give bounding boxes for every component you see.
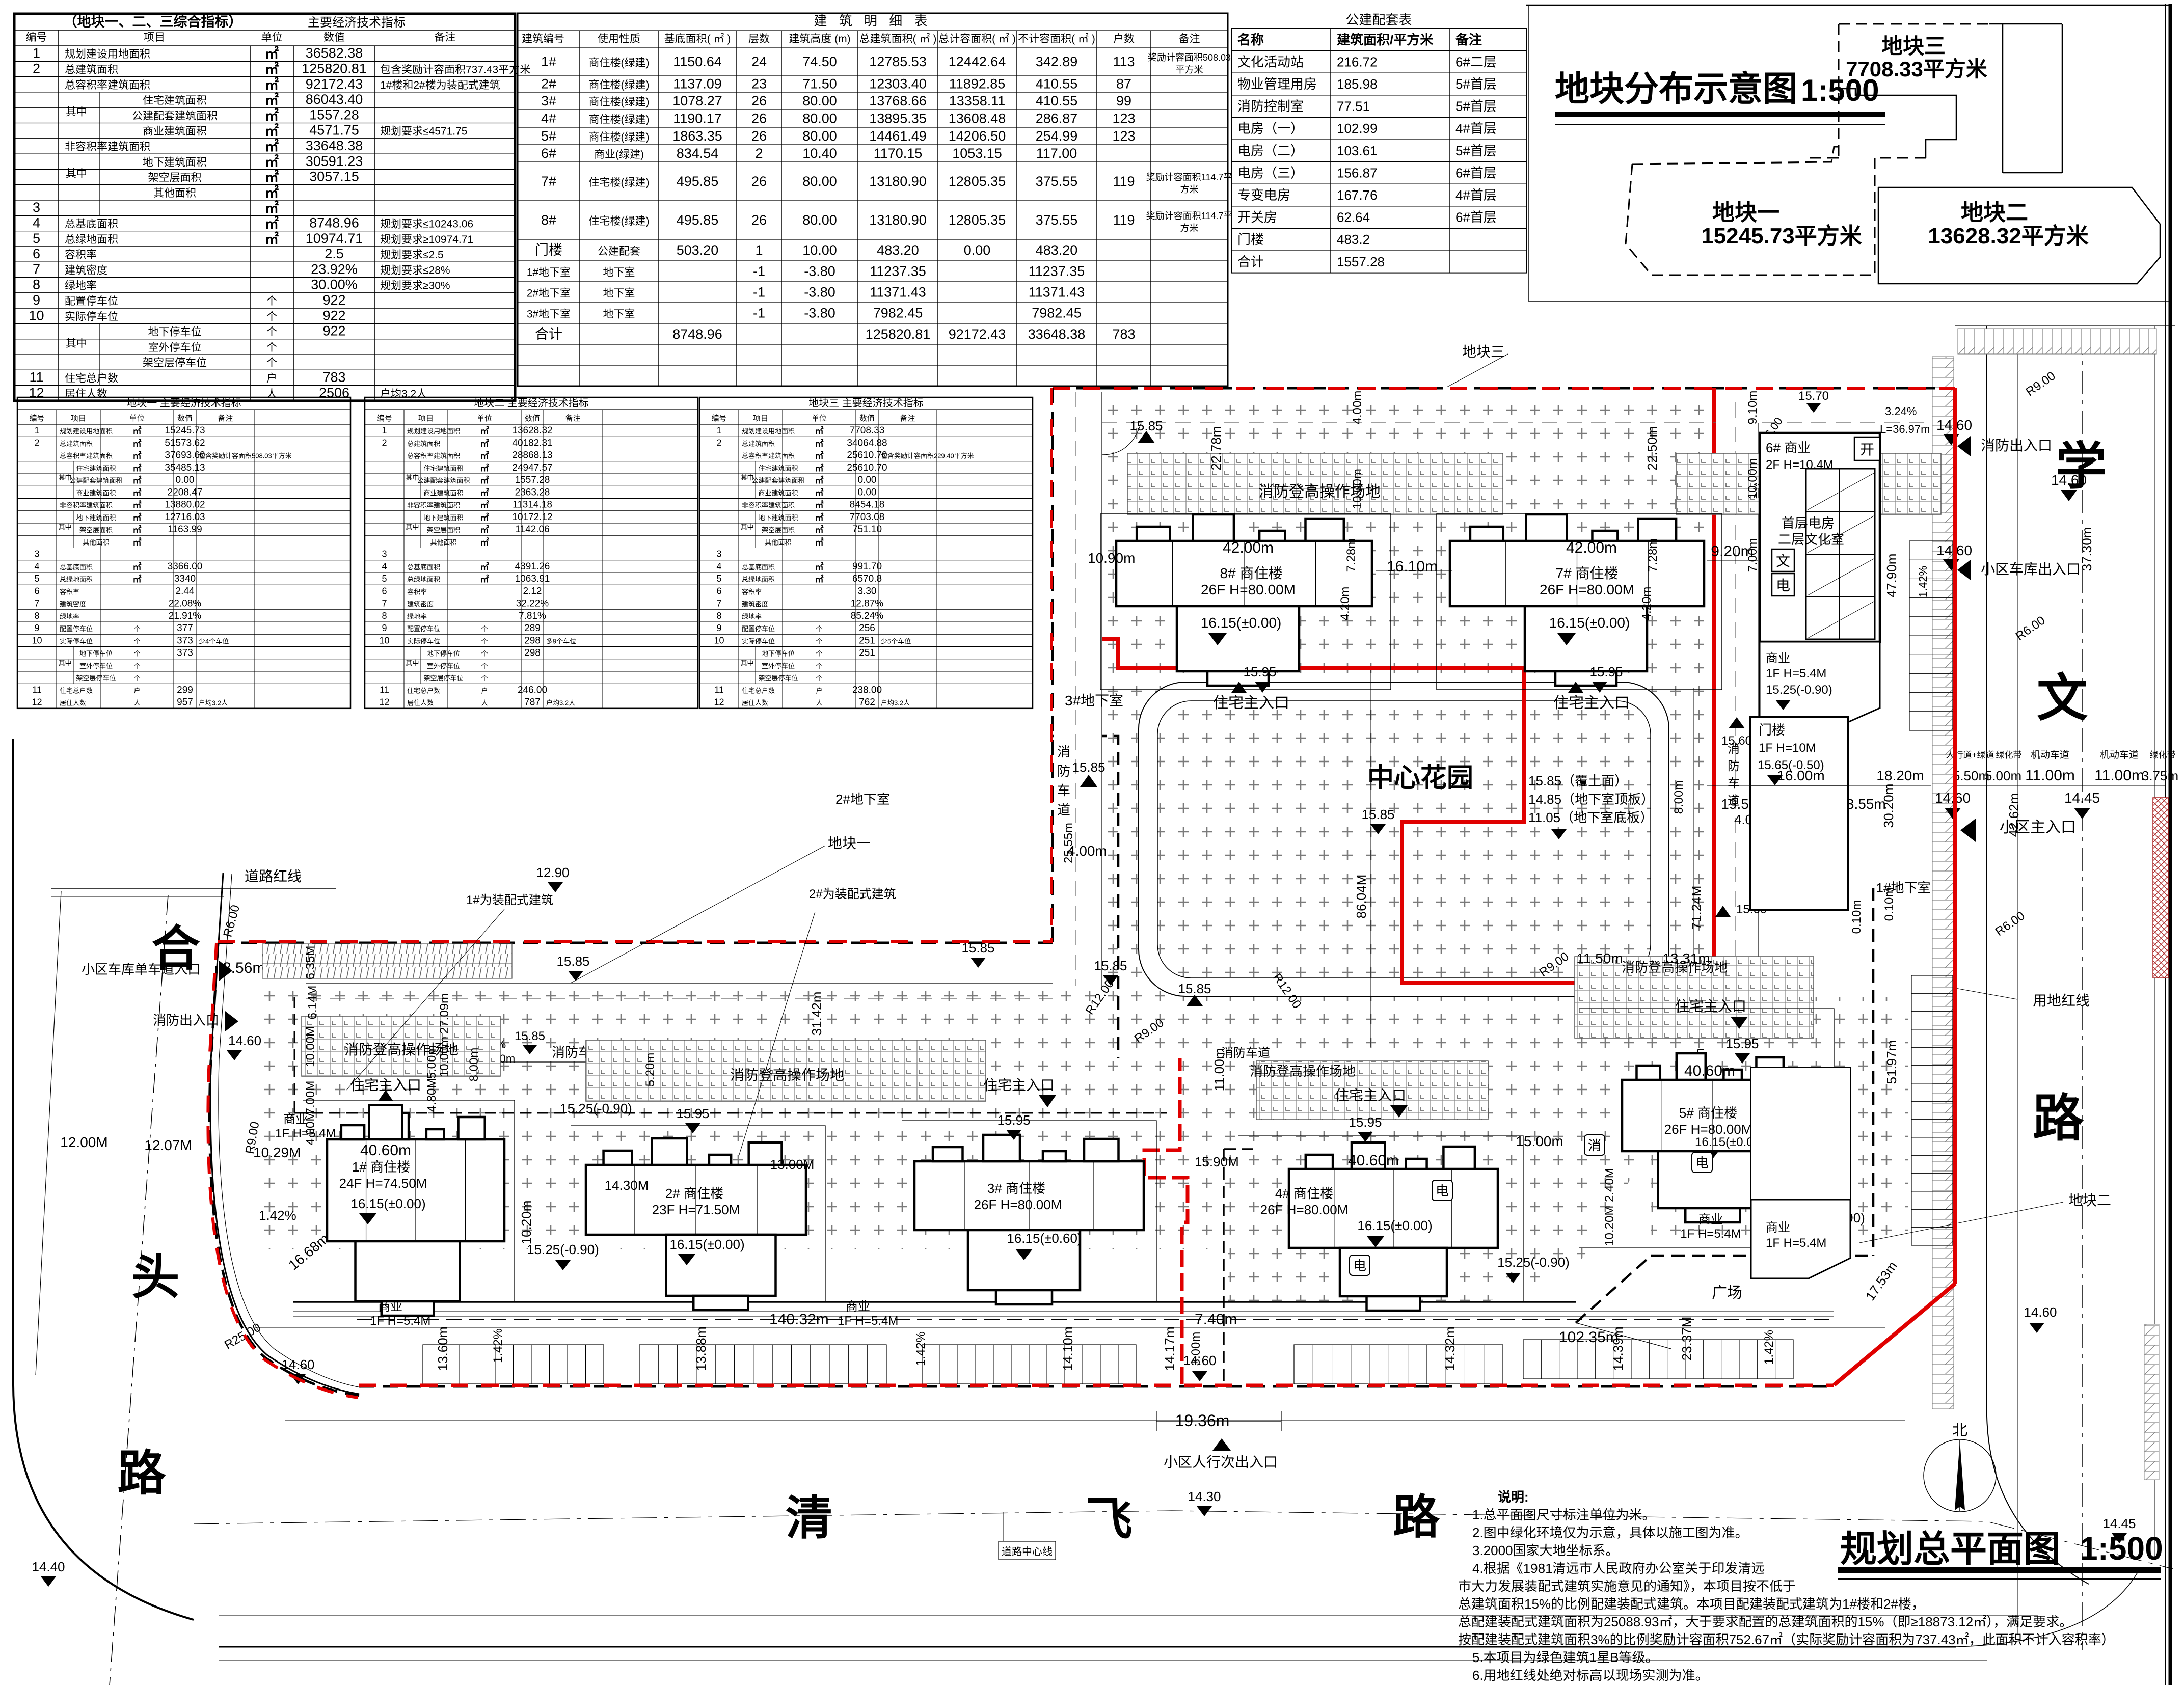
svg-text:8: 8: [382, 611, 387, 621]
svg-text:9: 9: [33, 292, 40, 308]
svg-text:74.50: 74.50: [802, 54, 837, 69]
svg-text:40.60m: 40.60m: [360, 1142, 411, 1159]
svg-text:15.85: 15.85: [1072, 759, 1105, 775]
svg-text:2F H=10.4M: 2F H=10.4M: [1766, 458, 1834, 472]
svg-text:7.40m: 7.40m: [1195, 1311, 1237, 1328]
svg-text:个: 个: [133, 674, 140, 682]
svg-text:住宅建筑面积: 住宅建筑面积: [423, 465, 463, 472]
svg-text:总建筑面积15%的比例配建装配式建筑。本项目配建装配式建筑为: 总建筑面积15%的比例配建装配式建筑。本项目配建装配式建筑为1#楼和2#楼，: [1458, 1596, 1925, 1612]
svg-text:住宅总户数: 住宅总户数: [407, 687, 440, 694]
svg-text:住宅主入口: 住宅主入口: [1335, 1087, 1406, 1103]
svg-text:102.99: 102.99: [1337, 121, 1378, 136]
svg-text:1F H=5.4M: 1F H=5.4M: [838, 1314, 898, 1328]
svg-text:个: 个: [481, 637, 488, 645]
svg-text:㎡: ㎡: [265, 215, 279, 231]
svg-text:22.78m: 22.78m: [1208, 426, 1224, 471]
svg-text:0.00: 0.00: [176, 475, 195, 485]
svg-text:商业: 商业: [1698, 1213, 1723, 1227]
svg-text:25.55m: 25.55m: [1062, 823, 1075, 863]
svg-text:14.60: 14.60: [2024, 1304, 2057, 1320]
svg-text:㎡: ㎡: [815, 500, 824, 510]
svg-text:4.20m: 4.20m: [1338, 587, 1352, 621]
svg-text:架空层面积: 架空层面积: [79, 526, 113, 534]
svg-text:道路红线: 道路红线: [245, 868, 302, 884]
svg-text:8.56m: 8.56m: [223, 960, 265, 976]
svg-text:绿地率: 绿地率: [407, 613, 427, 620]
svg-text:7.81%: 7.81%: [519, 611, 546, 621]
svg-text:㎡: ㎡: [265, 154, 279, 170]
svg-text:其中: 其中: [66, 168, 87, 180]
svg-text:40182.31: 40182.31: [512, 438, 552, 448]
svg-text:1: 1: [33, 45, 40, 61]
svg-text:10: 10: [379, 635, 389, 645]
svg-text:27.09m: 27.09m: [438, 993, 451, 1034]
svg-text:3: 3: [716, 549, 721, 559]
svg-text:6: 6: [34, 586, 39, 596]
svg-text:13768.66: 13768.66: [869, 93, 927, 108]
svg-text:2.图中绿化环境仅为示意，具体以施工图为准。: 2.图中绿化环境仅为示意，具体以施工图为准。: [1472, 1525, 1748, 1540]
svg-text:地下停车位: 地下停车位: [762, 650, 795, 658]
svg-text:容积率: 容积率: [742, 588, 762, 595]
svg-text:户: 户: [481, 687, 488, 694]
svg-text:1557.28: 1557.28: [309, 107, 359, 122]
svg-text:140.32m: 140.32m: [769, 1311, 829, 1328]
svg-text:㎡: ㎡: [133, 562, 142, 572]
svg-text:4: 4: [33, 215, 40, 230]
svg-text:15.25(-0.90): 15.25(-0.90): [560, 1101, 632, 1116]
svg-text:非容积率建筑面积: 非容积率建筑面积: [65, 141, 150, 153]
svg-text:个: 个: [481, 625, 488, 633]
svg-text:24F H=74.50M: 24F H=74.50M: [339, 1176, 427, 1191]
svg-text:规划要求≤2.5: 规划要求≤2.5: [380, 249, 444, 261]
svg-text:㎡: ㎡: [815, 525, 824, 535]
svg-text:3# 商住楼: 3# 商住楼: [987, 1181, 1045, 1196]
svg-text:30591.23: 30591.23: [306, 153, 363, 169]
svg-text:㎡: ㎡: [265, 200, 279, 216]
svg-text:8: 8: [33, 277, 40, 292]
svg-text:建筑密度: 建筑密度: [742, 601, 768, 608]
svg-text:6#二层: 6#二层: [1455, 54, 1497, 69]
svg-text:15.00m: 15.00m: [1516, 1133, 1563, 1149]
svg-text:其他面积: 其他面积: [153, 187, 196, 199]
svg-text:1863.35: 1863.35: [672, 128, 722, 144]
svg-text:483.20: 483.20: [877, 242, 919, 258]
svg-text:其他面积: 其他面积: [83, 538, 109, 546]
svg-text:16.00m: 16.00m: [1777, 768, 1824, 783]
svg-text:地块三: 地块三: [1462, 344, 1505, 360]
svg-text:9.10m: 9.10m: [1746, 391, 1760, 425]
svg-text:地下室: 地下室: [603, 309, 635, 320]
svg-text:495.85: 495.85: [677, 212, 719, 228]
svg-text:居住人数: 居住人数: [60, 699, 86, 707]
svg-text:2#为装配式建筑: 2#为装配式建筑: [809, 887, 896, 901]
svg-text:商住楼(绿建): 商住楼(绿建): [589, 114, 650, 126]
svg-text:包含奖励计容面积737.43平方米: 包含奖励计容面积737.43平方米: [380, 64, 530, 75]
svg-text:消防车道: 消防车道: [1221, 1046, 1270, 1060]
svg-text:40.60m: 40.60m: [1348, 1152, 1399, 1169]
svg-text:16.15(±0.00): 16.15(±0.00): [1201, 615, 1282, 631]
svg-text:总建筑面积: 总建筑面积: [742, 440, 775, 447]
svg-text:7708.33平方米: 7708.33平方米: [1846, 57, 1987, 81]
svg-text:架空层停车位: 架空层停车位: [76, 674, 116, 682]
svg-text:30.00%: 30.00%: [311, 277, 358, 292]
svg-text:15.95: 15.95: [1349, 1114, 1382, 1130]
svg-text:㎡: ㎡: [133, 525, 142, 535]
svg-text:非容积率建筑面积: 非容积率建筑面积: [407, 502, 460, 509]
svg-text:1190.17: 1190.17: [673, 111, 722, 126]
svg-text:33648.38: 33648.38: [1028, 326, 1086, 342]
svg-text:14.30: 14.30: [1188, 1489, 1221, 1504]
svg-text:规划建设用地面积: 规划建设用地面积: [742, 427, 795, 435]
svg-text:总建筑面积( ㎡ ): 总建筑面积( ㎡ ): [859, 33, 937, 45]
svg-text:11: 11: [714, 685, 724, 695]
svg-text:7: 7: [33, 261, 40, 277]
svg-text:其中: 其中: [58, 523, 71, 531]
svg-text:28868.13: 28868.13: [512, 450, 552, 461]
svg-text:3: 3: [34, 549, 39, 559]
svg-text:26F H=80.00M: 26F H=80.00M: [1664, 1122, 1752, 1137]
svg-text:5#首层: 5#首层: [1455, 143, 1497, 158]
svg-text:备注: 备注: [900, 414, 915, 423]
svg-text:6#首层: 6#首层: [1455, 210, 1497, 225]
svg-text:规划建设用地面积: 规划建设用地面积: [65, 48, 150, 60]
svg-text:2: 2: [755, 146, 763, 161]
svg-text:规划建设用地面积: 规划建设用地面积: [60, 427, 113, 435]
svg-text:建筑密度: 建筑密度: [65, 264, 107, 276]
svg-text:373: 373: [177, 635, 193, 646]
svg-text:规划要求≥30%: 规划要求≥30%: [380, 280, 450, 292]
svg-text:23.92%: 23.92%: [311, 261, 358, 277]
svg-text:㎡: ㎡: [265, 61, 279, 77]
svg-text:物业管理用房: 物业管理用房: [1237, 76, 1317, 92]
svg-text:4.20m: 4.20m: [1640, 587, 1654, 621]
svg-text:25610.70: 25610.70: [847, 462, 887, 473]
svg-text:26: 26: [751, 128, 767, 144]
svg-text:16.10m: 16.10m: [1387, 558, 1438, 575]
svg-text:246.00: 246.00: [518, 685, 547, 695]
svg-text:配置停车位: 配置停车位: [65, 295, 118, 307]
svg-text:其中: 其中: [66, 338, 87, 349]
svg-text:㎡: ㎡: [480, 463, 489, 473]
svg-text:小区人行次出入口: 小区人行次出入口: [1164, 1454, 1278, 1470]
svg-text:地块三 主要经济技术指标: 地块三 主要经济技术指标: [808, 397, 924, 409]
svg-text:12.07M: 12.07M: [144, 1137, 192, 1153]
svg-text:8.00m: 8.00m: [1672, 780, 1686, 814]
svg-text:4#首层: 4#首层: [1455, 121, 1497, 136]
svg-text:1.42%: 1.42%: [1762, 1330, 1776, 1365]
svg-text:人: 人: [133, 699, 140, 707]
svg-text:㎡: ㎡: [480, 438, 489, 448]
svg-text:㎡: ㎡: [265, 139, 279, 154]
svg-text:15.95: 15.95: [1243, 664, 1276, 679]
svg-text:住宅建筑面积: 住宅建筑面积: [76, 465, 116, 472]
svg-text:㎡: ㎡: [480, 512, 489, 523]
svg-text:地下停车位: 地下停车位: [427, 650, 460, 658]
svg-text:道路中心线: 道路中心线: [1002, 1546, 1053, 1558]
svg-text:奖励计容面积114.7平: 奖励计容面积114.7平: [1146, 211, 1233, 221]
svg-text:8.00m: 8.00m: [467, 1048, 481, 1082]
svg-text:10: 10: [32, 635, 42, 645]
svg-text:基底面积( ㎡ ): 基底面积( ㎡ ): [664, 33, 731, 45]
svg-text:8: 8: [716, 611, 721, 621]
svg-text:住宅主入口: 住宅主入口: [350, 1077, 421, 1093]
svg-text:2: 2: [716, 438, 721, 448]
svg-text:9: 9: [34, 623, 39, 633]
svg-text:个: 个: [816, 674, 822, 682]
svg-text:2: 2: [33, 61, 40, 76]
svg-text:小区车库单车道入口: 小区车库单车道入口: [82, 962, 201, 977]
svg-text:㎡: ㎡: [815, 426, 824, 436]
svg-text:13628.32: 13628.32: [512, 425, 552, 436]
svg-text:地块一 主要经济技术指标: 地块一 主要经济技术指标: [126, 397, 241, 409]
svg-text:8748.96: 8748.96: [309, 215, 359, 230]
svg-text:922: 922: [322, 323, 345, 339]
svg-text:13358.11: 13358.11: [949, 93, 1006, 108]
svg-text:其中: 其中: [740, 474, 753, 481]
svg-text:总基底面积: 总基底面积: [407, 563, 440, 571]
svg-text:3: 3: [33, 200, 40, 215]
svg-text:合计: 合计: [1237, 254, 1264, 269]
svg-text:1: 1: [716, 425, 721, 435]
svg-text:总配建装配式建筑面积为25088.93㎡，大于要求配置的总建: 总配建装配式建筑面积为25088.93㎡，大于要求配置的总建筑面积的15%（即≥…: [1458, 1614, 2072, 1629]
svg-text:6: 6: [716, 586, 721, 596]
svg-text:不计容面积( ㎡ ): 不计容面积( ㎡ ): [1018, 33, 1095, 45]
svg-text:单位: 单位: [129, 414, 145, 423]
svg-text:住宅建筑面积: 住宅建筑面积: [143, 95, 207, 106]
svg-text:机动车道: 机动车道: [2100, 749, 2139, 760]
svg-text:架空层停车位: 架空层停车位: [758, 674, 798, 682]
svg-text:1F H=5.4M: 1F H=5.4M: [1766, 1236, 1826, 1250]
svg-text:㎡: ㎡: [133, 463, 142, 473]
svg-text:1.42%: 1.42%: [1917, 566, 1929, 597]
svg-text:电房（一）: 电房（一）: [1237, 121, 1304, 136]
svg-text:167.76: 167.76: [1337, 187, 1378, 203]
svg-text:防: 防: [1728, 759, 1740, 773]
svg-text:户: 户: [816, 687, 822, 694]
svg-text:13.31m: 13.31m: [1662, 950, 1710, 966]
svg-text:㎡: ㎡: [265, 231, 279, 247]
svg-text:总绿地面积: 总绿地面积: [60, 576, 93, 583]
svg-text:6#首层: 6#首层: [1455, 165, 1497, 180]
svg-text:架空层停车位: 架空层停车位: [423, 674, 463, 682]
svg-text:6#: 6#: [541, 146, 556, 161]
svg-text:路: 路: [2033, 1090, 2084, 1147]
svg-text:㎡: ㎡: [480, 537, 489, 547]
svg-text:个: 个: [133, 637, 140, 645]
svg-text:编号: 编号: [711, 414, 726, 423]
svg-text:16.15(±0.00): 16.15(±0.00): [1549, 615, 1630, 631]
svg-text:14.30M: 14.30M: [605, 1178, 649, 1193]
svg-text:4.根据《1981清远市人民政府办公室关于印发清远: 4.根据《1981清远市人民政府办公室关于印发清远: [1472, 1561, 1765, 1576]
svg-text:单位: 单位: [261, 32, 283, 43]
svg-text:8454.18: 8454.18: [850, 500, 885, 510]
svg-text:市大力发展装配式建筑实施意见的通知》，本项目按不低于: 市大力发展装配式建筑实施意见的通知》，本项目按不低于: [1458, 1578, 1796, 1594]
svg-text:备注: 备注: [435, 32, 456, 43]
svg-text:建筑密度: 建筑密度: [407, 601, 434, 608]
svg-text:个: 个: [481, 650, 488, 658]
svg-text:156.87: 156.87: [1337, 165, 1378, 180]
svg-text:户均3.2人: 户均3.2人: [881, 699, 910, 707]
svg-text:12: 12: [379, 697, 389, 707]
svg-text:商业: 商业: [378, 1300, 402, 1314]
svg-text:住宅楼(绿建): 住宅楼(绿建): [589, 215, 650, 227]
svg-text:5: 5: [34, 574, 39, 584]
svg-text:备注: 备注: [1455, 32, 1482, 47]
svg-text:13180.90: 13180.90: [869, 212, 927, 228]
svg-text:-1: -1: [753, 306, 765, 321]
svg-text:实际停车位: 实际停车位: [742, 637, 775, 645]
svg-text:商住楼(绿建): 商住楼(绿建): [589, 79, 650, 91]
svg-text:119: 119: [1113, 174, 1135, 189]
svg-text:头: 头: [131, 1250, 179, 1304]
svg-text:12.87%: 12.87%: [851, 598, 884, 609]
svg-text:375.55: 375.55: [1036, 212, 1078, 228]
svg-text:电房（二）: 电房（二）: [1237, 143, 1304, 158]
svg-text:用地红线: 用地红线: [2033, 993, 2090, 1009]
svg-text:消防控制室: 消防控制室: [1237, 99, 1304, 114]
svg-text:公建配套建筑面积: 公建配套建筑面积: [751, 477, 804, 484]
svg-text:26: 26: [751, 174, 767, 189]
svg-text:北: 北: [1952, 1422, 1967, 1439]
svg-text:建 筑 明 细 表: 建 筑 明 细 表: [814, 13, 932, 29]
svg-text:居住人数: 居住人数: [65, 388, 107, 400]
svg-text:少5个车位: 少5个车位: [881, 637, 911, 645]
svg-text:14.17m: 14.17m: [1162, 1327, 1177, 1371]
svg-text:80.00: 80.00: [802, 111, 837, 126]
svg-text:㎡: ㎡: [480, 487, 489, 498]
svg-text:4391.26: 4391.26: [515, 561, 550, 572]
svg-text:户: 户: [266, 372, 277, 384]
svg-text:11237.35: 11237.35: [1029, 264, 1085, 279]
svg-text:7.00M: 7.00M: [304, 1081, 317, 1115]
svg-text:住宅主入口: 住宅主入口: [1553, 695, 1630, 712]
svg-text:1#: 1#: [541, 54, 556, 69]
svg-text:35485.13: 35485.13: [165, 462, 205, 473]
svg-text:26F H=80.00M: 26F H=80.00M: [974, 1197, 1062, 1212]
svg-text:10.20m: 10.20m: [519, 1201, 534, 1245]
svg-text:车: 车: [1057, 783, 1070, 798]
svg-text:个: 个: [481, 674, 488, 682]
svg-text:总建筑面积: 总建筑面积: [65, 64, 118, 75]
svg-text:922: 922: [322, 308, 345, 323]
svg-text:15.85: 15.85: [961, 940, 994, 956]
svg-text:10: 10: [29, 308, 44, 323]
svg-text:商业: 商业: [1766, 1221, 1790, 1235]
svg-text:单位: 单位: [812, 414, 827, 423]
svg-text:14.40: 14.40: [32, 1559, 65, 1574]
svg-text:3.24%: 3.24%: [1885, 405, 1917, 418]
svg-text:14.10m: 14.10m: [1060, 1327, 1075, 1371]
svg-text:254.99: 254.99: [1036, 128, 1078, 144]
svg-text:总基底面积: 总基底面积: [742, 563, 775, 571]
svg-text:1.42%: 1.42%: [259, 1208, 296, 1223]
svg-text:总计容面积( ㎡ ): 总计容面积( ㎡ ): [938, 33, 1016, 45]
svg-text:12303.40: 12303.40: [869, 76, 927, 92]
svg-text:其中: 其中: [740, 659, 753, 667]
svg-text:783: 783: [1112, 326, 1135, 342]
svg-text:4# 商住楼: 4# 商住楼: [1275, 1186, 1333, 1201]
svg-text:991.70: 991.70: [852, 561, 882, 572]
svg-text:5#首层: 5#首层: [1455, 99, 1497, 114]
svg-text:12.00M: 12.00M: [60, 1134, 107, 1150]
svg-text:14.60: 14.60: [2051, 472, 2087, 488]
svg-text:834.54: 834.54: [677, 146, 719, 161]
svg-text:15.90M: 15.90M: [1195, 1154, 1239, 1169]
svg-text:户数: 户数: [1113, 33, 1135, 45]
svg-text:配置停车位: 配置停车位: [742, 625, 775, 633]
svg-text:15.25(-0.90): 15.25(-0.90): [1766, 683, 1832, 697]
svg-text:15.85: 15.85: [556, 954, 589, 969]
svg-text:1#地下室: 1#地下室: [527, 267, 571, 279]
svg-text:6.35M: 6.35M: [304, 946, 317, 980]
svg-text:11.05（地下室底板）: 11.05（地下室底板）: [1528, 810, 1653, 825]
svg-text:总建筑面积: 总建筑面积: [407, 440, 440, 447]
svg-text:奖励计容面积508.03: 奖励计容面积508.03: [1148, 52, 1231, 63]
svg-text:个: 个: [481, 662, 488, 670]
svg-text:个: 个: [266, 295, 277, 307]
svg-text:㎡: ㎡: [265, 170, 279, 185]
svg-text:路: 路: [1393, 1491, 1440, 1543]
svg-text:室外停车位: 室外停车位: [79, 662, 113, 670]
svg-text:人: 人: [266, 388, 277, 400]
svg-text:11: 11: [32, 685, 42, 695]
svg-text:总容积率建筑面积: 总容积率建筑面积: [65, 79, 150, 91]
svg-text:2.12: 2.12: [523, 586, 542, 596]
svg-text:室外停车位: 室外停车位: [427, 662, 460, 670]
svg-text:使用性质: 使用性质: [598, 33, 640, 45]
svg-text:102.35m: 102.35m: [1559, 1329, 1619, 1346]
svg-text:户均3.2人: 户均3.2人: [199, 699, 228, 707]
svg-text:13895.35: 13895.35: [869, 111, 927, 126]
svg-text:15.95: 15.95: [1589, 664, 1623, 679]
svg-text:项目: 项目: [144, 32, 165, 43]
svg-text:11: 11: [380, 685, 389, 695]
svg-text:其中: 其中: [406, 659, 419, 667]
svg-text:15.85（覆土面）: 15.85（覆土面）: [1528, 773, 1628, 788]
svg-text:数值: 数值: [859, 414, 875, 423]
svg-text:消: 消: [1588, 1138, 1601, 1153]
svg-text:8: 8: [34, 611, 39, 621]
svg-text:实际停车位: 实际停车位: [60, 637, 93, 645]
svg-text:15.85: 15.85: [515, 1029, 545, 1043]
svg-text:238.00: 238.00: [852, 685, 882, 695]
svg-text:12: 12: [714, 697, 724, 707]
svg-text:12.90: 12.90: [536, 865, 569, 880]
svg-text:二层文化室: 二层文化室: [1778, 532, 1844, 547]
svg-text:建筑密度: 建筑密度: [60, 601, 86, 608]
svg-text:其中: 其中: [58, 659, 71, 667]
svg-text:3#地下室: 3#地下室: [1065, 693, 1123, 709]
svg-text:14.85（地下室顶板）: 14.85（地下室顶板）: [1528, 792, 1654, 807]
svg-text:10.90m: 10.90m: [1088, 550, 1135, 566]
svg-text:2.5: 2.5: [325, 246, 344, 261]
svg-text:容积率: 容积率: [407, 588, 427, 595]
svg-text:1#地下室: 1#地下室: [1876, 880, 1931, 895]
svg-text:绿化带: 绿化带: [2150, 750, 2176, 760]
svg-text:其中: 其中: [58, 474, 71, 481]
svg-text:总容积率建筑面积: 总容积率建筑面积: [742, 452, 795, 460]
svg-text:㎡: ㎡: [133, 512, 142, 523]
svg-text:125820.81: 125820.81: [866, 326, 931, 342]
svg-text:㎡: ㎡: [265, 92, 279, 108]
svg-text:216.72: 216.72: [1337, 54, 1378, 69]
svg-text:㎡: ㎡: [265, 185, 279, 201]
svg-text:12805.35: 12805.35: [949, 174, 1006, 189]
svg-text:建筑面积/平方米: 建筑面积/平方米: [1337, 32, 1433, 47]
svg-text:㎡: ㎡: [480, 525, 489, 535]
svg-text:7: 7: [34, 598, 39, 609]
svg-text:㎡: ㎡: [265, 123, 279, 139]
